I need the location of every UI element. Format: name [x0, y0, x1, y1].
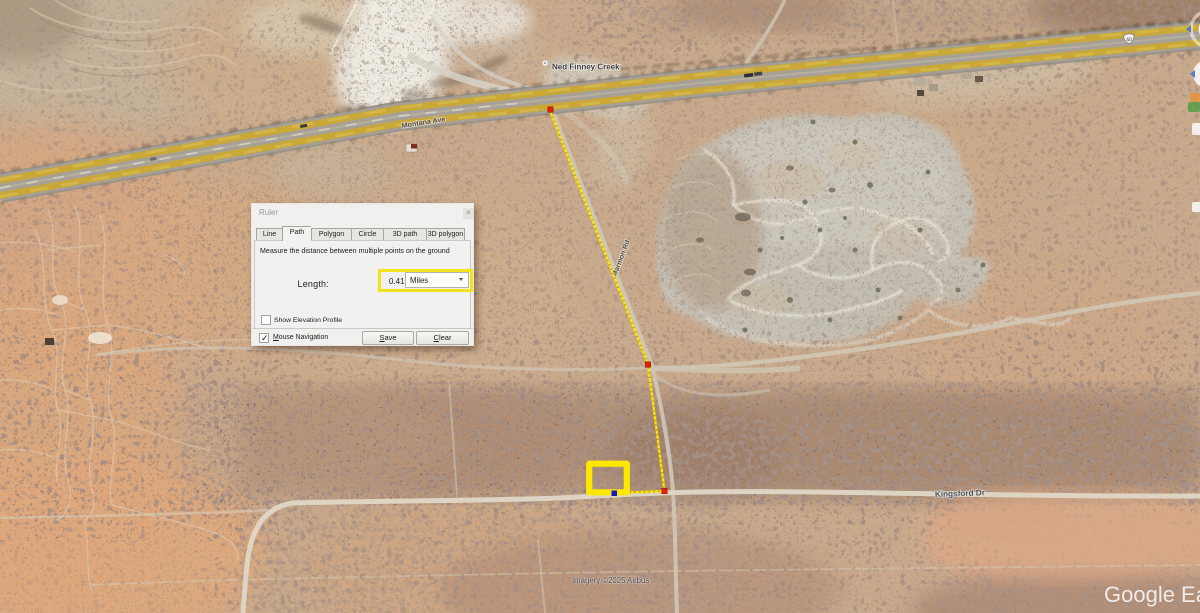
svg-text:Ned Finney Creek: Ned Finney Creek — [552, 63, 620, 72]
svg-text:Kingsford Dr: Kingsford Dr — [935, 488, 986, 499]
svg-text:40: 40 — [1126, 37, 1133, 44]
